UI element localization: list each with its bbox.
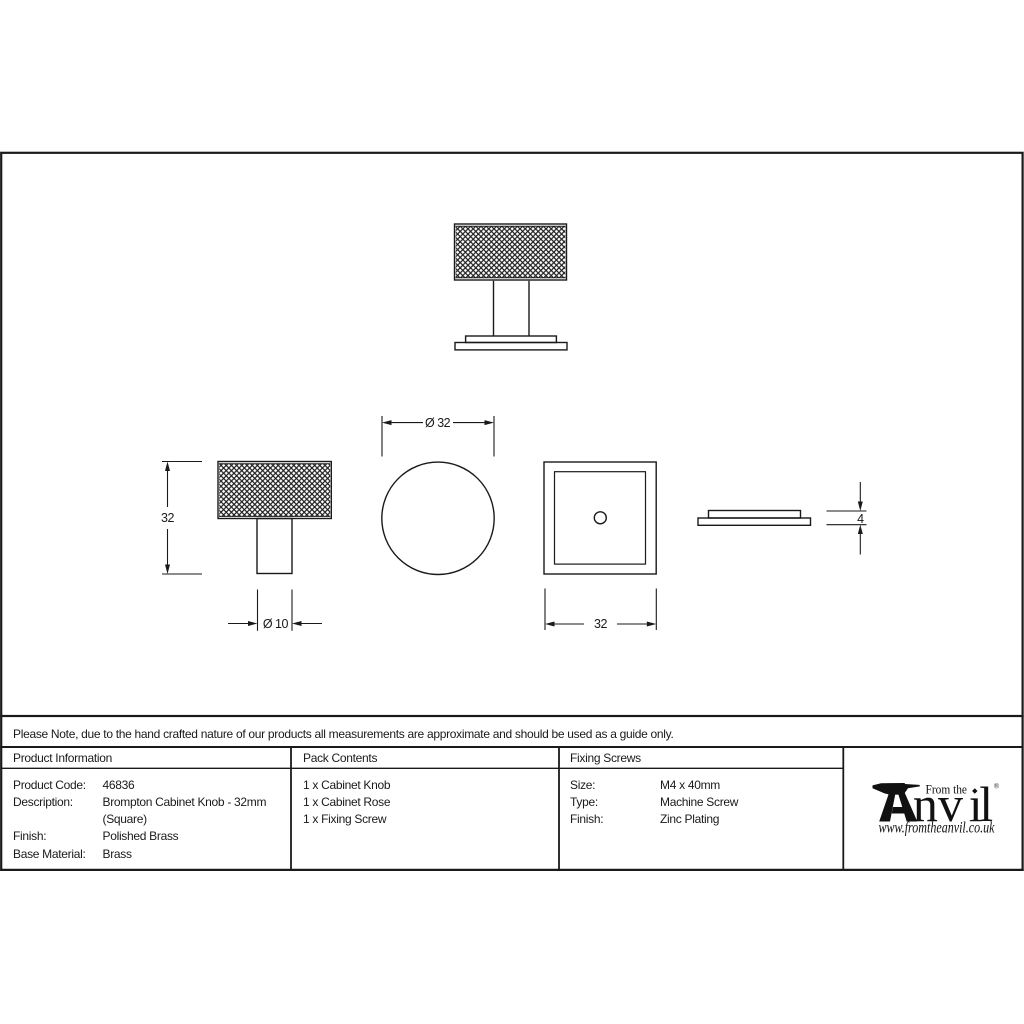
svg-text:www.fromtheanvil.co.uk: www.fromtheanvil.co.uk	[879, 820, 996, 837]
svg-text:®: ®	[994, 782, 1000, 791]
svg-text:From the: From the	[926, 783, 968, 797]
